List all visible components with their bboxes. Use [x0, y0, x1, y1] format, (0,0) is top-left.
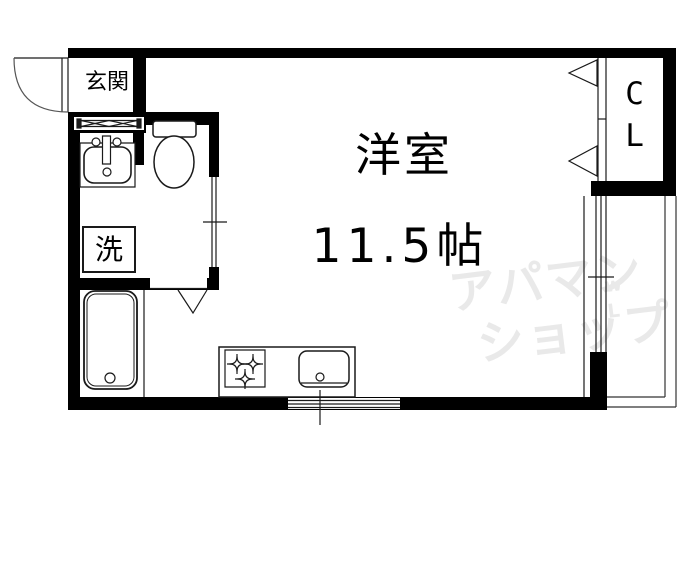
wall-right	[663, 48, 676, 196]
entrance-label: 玄関	[81, 71, 133, 94]
toilet-icon	[153, 121, 196, 188]
closet-folding-door-icon	[569, 58, 606, 181]
entrance-partition-opening	[74, 117, 144, 130]
main-room-size-label: 11.5帖	[250, 222, 550, 271]
wall-top	[68, 48, 676, 58]
washbasin-icon	[80, 136, 135, 187]
closet-label: CL	[618, 76, 651, 160]
floor-plan: アパマン ショップ w L	[0, 0, 690, 575]
kitchen-sink-icon	[299, 351, 349, 387]
laundry-label: 洗	[83, 235, 135, 264]
wall-pier-right	[590, 352, 607, 410]
bathroom-door-opening	[150, 278, 207, 289]
entrance-door-icon	[14, 58, 68, 112]
bathroom-door-icon	[150, 289, 207, 314]
balcony-outline	[607, 196, 676, 407]
wall-left	[68, 112, 80, 410]
main-room-label: 洋室	[304, 131, 504, 179]
wall-closet-bottom	[591, 181, 676, 196]
bathtub-icon	[84, 290, 144, 397]
